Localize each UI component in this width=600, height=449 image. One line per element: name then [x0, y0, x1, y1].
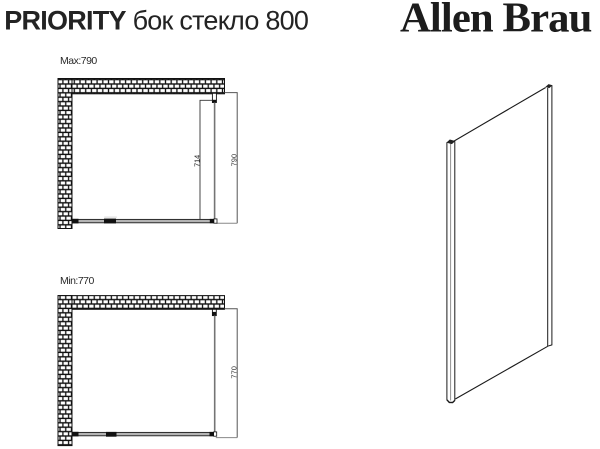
svg-text:Max:790: Max:790 — [60, 55, 97, 67]
svg-text:790: 790 — [229, 154, 238, 167]
svg-text:714: 714 — [192, 155, 201, 167]
svg-text:Min:770: Min:770 — [60, 275, 95, 287]
svg-text:770: 770 — [229, 366, 238, 379]
svg-text:PRIORITY бок стекло 800: PRIORITY бок стекло 800 — [4, 6, 308, 36]
svg-text:Allen Brau: Allen Brau — [400, 0, 592, 41]
